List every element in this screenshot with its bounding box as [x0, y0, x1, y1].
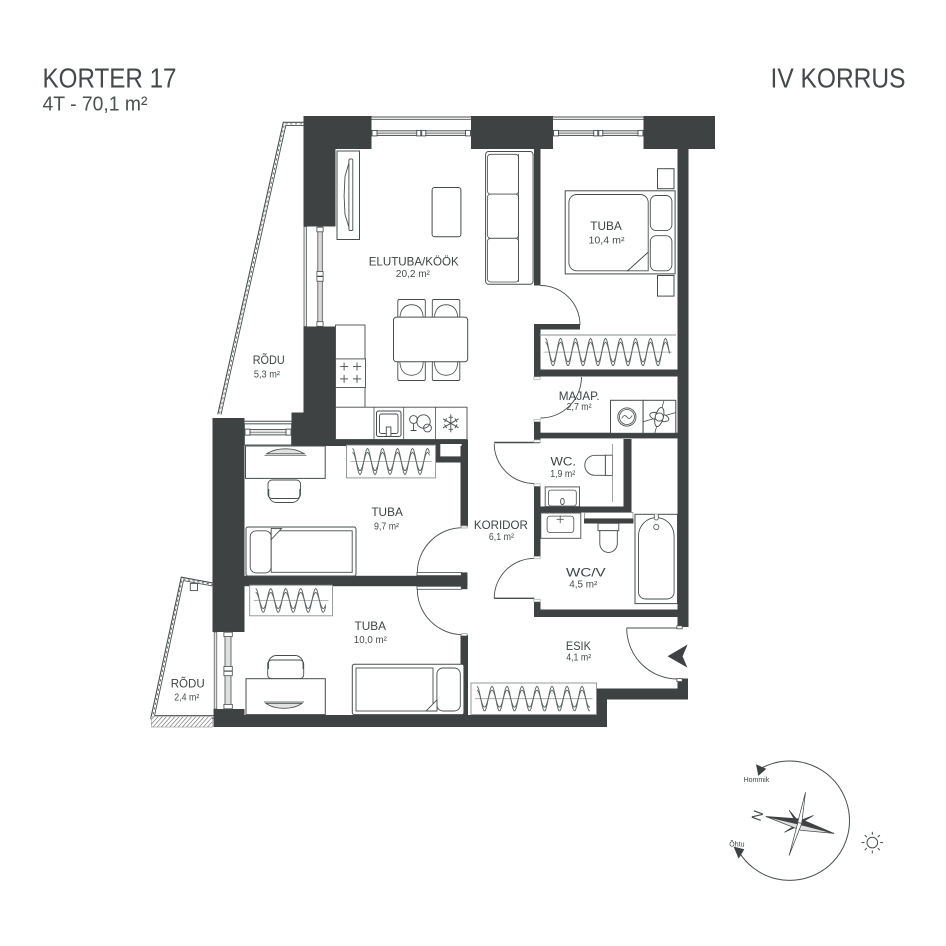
- svg-text:10,0 m²: 10,0 m²: [354, 635, 388, 646]
- svg-text:9,7 m²: 9,7 m²: [374, 522, 400, 533]
- svg-text:20,2 m²: 20,2 m²: [396, 269, 431, 280]
- svg-text:RÕDU: RÕDU: [253, 352, 285, 367]
- svg-text:10,4 m²: 10,4 m²: [589, 236, 626, 247]
- svg-text:5,3 m²: 5,3 m²: [254, 370, 281, 381]
- svg-text:4,5 m²: 4,5 m²: [569, 579, 598, 590]
- svg-text:KORIDOR: KORIDOR: [474, 518, 528, 532]
- svg-text:4T - 70,1 m²: 4T - 70,1 m²: [43, 94, 148, 116]
- svg-text:ESIK: ESIK: [566, 639, 591, 653]
- svg-text:Hommik: Hommik: [744, 777, 770, 784]
- svg-text:RÕDU: RÕDU: [171, 676, 205, 691]
- svg-text:WC.: WC.: [551, 455, 577, 469]
- svg-text:TUBA: TUBA: [590, 219, 622, 233]
- svg-text:IV KORRUS: IV KORRUS: [771, 63, 906, 94]
- svg-text:4,1 m²: 4,1 m²: [566, 653, 592, 664]
- svg-text:2,4 m²: 2,4 m²: [174, 693, 200, 704]
- svg-text:2,7 m²: 2,7 m²: [567, 402, 593, 413]
- svg-text:ELUTUBA/KÖÖK: ELUTUBA/KÖÖK: [369, 255, 459, 269]
- svg-text:KORTER 17: KORTER 17: [43, 63, 177, 94]
- svg-text:1,9 m²: 1,9 m²: [550, 469, 576, 480]
- svg-text:WC/V: WC/V: [566, 566, 606, 580]
- svg-text:TUBA: TUBA: [355, 619, 387, 633]
- svg-text:MAJAP.: MAJAP.: [559, 389, 600, 403]
- svg-text:6,1 m²: 6,1 m²: [489, 532, 515, 543]
- svg-text:Õhtu: Õhtu: [729, 840, 744, 849]
- svg-text:TUBA: TUBA: [371, 505, 403, 519]
